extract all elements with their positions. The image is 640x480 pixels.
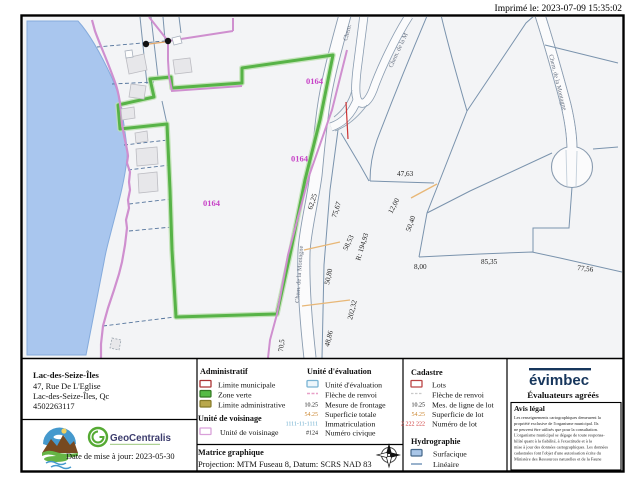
- svg-text:Unité de voisinage: Unité de voisinage: [220, 428, 279, 437]
- svg-text:Unité de voisinage: Unité de voisinage: [198, 414, 262, 423]
- svg-text:54.25: 54.25: [305, 412, 319, 418]
- svg-text:47, Rue De L'Eglise: 47, Rue De L'Eglise: [33, 382, 101, 391]
- svg-text:Administratif: Administratif: [200, 367, 248, 376]
- svg-text:Limite administrative: Limite administrative: [218, 401, 286, 410]
- svg-text:Matrice graphique: Matrice graphique: [198, 448, 264, 457]
- svg-text:4502263117: 4502263117: [33, 402, 75, 411]
- svg-text:2 222 222: 2 222 222: [401, 422, 425, 428]
- svg-text:Lac-des-Seize-Îles, Qc: Lac-des-Seize-Îles, Qc: [33, 391, 110, 401]
- svg-text:Évaluateurs agréés: Évaluateurs agréés: [527, 390, 599, 400]
- svg-text:Limite municipale: Limite municipale: [218, 381, 276, 390]
- svg-text:cadastrales font l'objet d'une: cadastrales font l'objet d'une autorisat…: [514, 450, 602, 455]
- svg-text:Lac-des-Seize-Îles: Lac-des-Seize-Îles: [33, 370, 100, 380]
- svg-text:Cadastre: Cadastre: [411, 368, 443, 377]
- svg-text:10.25: 10.25: [305, 403, 319, 409]
- svg-text:70,5: 70,5: [277, 338, 286, 352]
- svg-text:Numéro civique: Numéro civique: [325, 429, 376, 438]
- svg-text:Flèche de renvoi: Flèche de renvoi: [325, 391, 378, 400]
- svg-text:mise à jour des données cartog: mise à jour des données cartographiques.…: [514, 445, 608, 450]
- svg-text:Mes. de ligne de lot: Mes. de ligne de lot: [432, 401, 495, 410]
- svg-text:Numéro de lot: Numéro de lot: [432, 420, 478, 429]
- svg-text:Flèche de renvoi: Flèche de renvoi: [432, 391, 485, 400]
- svg-text:Les renseignements cartographi: Les renseignements cartographiques demeu…: [514, 415, 601, 420]
- svg-text:8,00: 8,00: [414, 263, 427, 271]
- svg-text:#124: #124: [306, 431, 318, 437]
- svg-text:Surfacique: Surfacique: [433, 450, 467, 459]
- svg-text:ne peuvent être utilisés que p: ne peuvent être utilisés que pour la con…: [514, 427, 598, 432]
- svg-text:Imprimé le: 2023-07-09 15:35:0: Imprimé le: 2023-07-09 15:35:02: [495, 4, 623, 14]
- svg-text:0164: 0164: [203, 198, 221, 208]
- svg-text:Avis légal: Avis légal: [514, 404, 545, 413]
- svg-text:85,35: 85,35: [481, 258, 498, 266]
- svg-text:Hydrographie: Hydrographie: [411, 437, 461, 446]
- svg-text:GeoCentralis: GeoCentralis: [110, 433, 172, 444]
- svg-text:Immatriculation: Immatriculation: [325, 420, 375, 429]
- svg-text:Unité d'évaluation: Unité d'évaluation: [307, 367, 372, 376]
- svg-text:Superficie de lot: Superficie de lot: [432, 410, 484, 419]
- svg-text:47,63: 47,63: [397, 170, 414, 178]
- svg-text:Projection: MTM Fuseau 8, Datu: Projection: MTM Fuseau 8, Datum: SCRS NA…: [198, 460, 372, 469]
- svg-text:0164: 0164: [306, 76, 324, 86]
- svg-text:Linéaire: Linéaire: [433, 460, 460, 469]
- svg-text:Superficie totale: Superficie totale: [325, 410, 377, 419]
- svg-text:Unité d'évaluation: Unité d'évaluation: [325, 381, 382, 390]
- svg-text:Mesure de frontage: Mesure de frontage: [325, 401, 386, 410]
- svg-text:Date de mise à jour: 2023-05-3: Date de mise à jour: 2023-05-30: [66, 452, 175, 461]
- svg-text:Ministère des Ressources natur: Ministère des Ressources naturelles et d…: [514, 456, 602, 461]
- svg-text:1111-11-1111: 1111-11-1111: [286, 422, 318, 428]
- svg-text:L'organisme municipal se dégag: L'organisme municipal se dégage de toute…: [514, 433, 605, 438]
- svg-text:Zone verte: Zone verte: [218, 391, 252, 400]
- svg-text:Lots: Lots: [432, 381, 446, 390]
- svg-text:0164: 0164: [291, 154, 309, 164]
- svg-text:54.25: 54.25: [412, 412, 426, 418]
- svg-text:10.25: 10.25: [412, 403, 426, 409]
- svg-text:évimbec: évimbec: [529, 372, 589, 389]
- svg-text:propriété exclusive de l'organ: propriété exclusive de l'organisme munic…: [514, 421, 599, 426]
